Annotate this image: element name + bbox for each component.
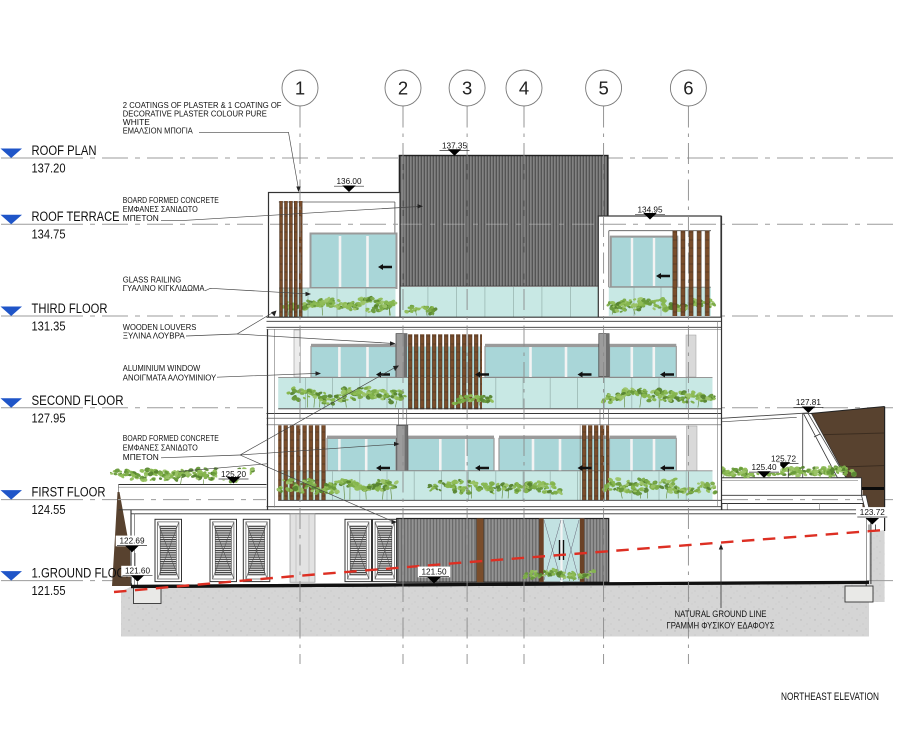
svg-text:121.55: 121.55 <box>32 583 66 598</box>
svg-text:SECOND FLOOR: SECOND FLOOR <box>32 393 124 408</box>
svg-text:ΕΜΦΑΝΕΣ ΣΑΝΙΔΩΤΟ: ΕΜΦΑΝΕΣ ΣΑΝΙΔΩΤΟ <box>123 444 198 453</box>
svg-text:131.35: 131.35 <box>32 319 66 334</box>
svg-text:BOARD FORMED CONCRETE: BOARD FORMED CONCRETE <box>123 434 219 443</box>
svg-text:1: 1 <box>295 78 305 99</box>
svg-text:1.GROUND FLOO.: 1.GROUND FLOO. <box>32 566 129 581</box>
svg-text:125.40: 125.40 <box>751 463 776 472</box>
svg-text:134.75: 134.75 <box>32 227 66 242</box>
svg-text:3: 3 <box>462 78 472 99</box>
svg-text:BOARD FORMED CONCRETE: BOARD FORMED CONCRETE <box>123 196 219 205</box>
svg-text:ΜΠΕΤΟΝ: ΜΠΕΤΟΝ <box>123 453 159 462</box>
svg-text:NATURAL GROUND LINE: NATURAL GROUND LINE <box>675 609 767 620</box>
svg-text:ALUMINIUM WINDOW: ALUMINIUM WINDOW <box>123 364 201 373</box>
svg-text:ΓΥΑΛΙΝΟ ΚΙΓΚΛΙΔΩΜΑ: ΓΥΑΛΙΝΟ ΚΙΓΚΛΙΔΩΜΑ <box>123 284 205 293</box>
svg-text:THIRD FLOOR: THIRD FLOOR <box>32 301 108 316</box>
svg-text:124.55: 124.55 <box>32 502 66 517</box>
svg-text:136.00: 136.00 <box>336 177 361 186</box>
svg-text:127.81: 127.81 <box>796 398 821 407</box>
svg-text:ΜΠΕΤΟΝ: ΜΠΕΤΟΝ <box>123 214 159 223</box>
svg-text:2: 2 <box>398 78 408 99</box>
svg-text:ΕΜΦΑΝΕΣ ΣΑΝΙΔΩΤΟ: ΕΜΦΑΝΕΣ ΣΑΝΙΔΩΤΟ <box>123 205 198 214</box>
svg-text:ΞΥΛΙΝΑ ΛΟΥΒΡΑ: ΞΥΛΙΝΑ ΛΟΥΒΡΑ <box>123 332 186 341</box>
svg-text:NORTHEAST ELEVATION: NORTHEAST ELEVATION <box>781 691 879 703</box>
svg-text:121.60: 121.60 <box>125 567 150 576</box>
svg-text:127.95: 127.95 <box>32 410 66 425</box>
svg-text:137.35: 137.35 <box>442 141 467 150</box>
svg-text:4: 4 <box>519 78 529 99</box>
svg-text:ROOF TERRACE: ROOF TERRACE <box>32 209 120 224</box>
svg-text:ΕΜΑΛΣΙΟΝ ΜΠΟΓΙΑ: ΕΜΑΛΣΙΟΝ ΜΠΟΓΙΑ <box>123 126 194 135</box>
svg-text:137.20: 137.20 <box>32 161 66 176</box>
svg-text:ΑΝΟΙΓΜΑΤΑ ΑΛΟΥΜΙΝΙΟΥ: ΑΝΟΙΓΜΑΤΑ ΑΛΟΥΜΙΝΙΟΥ <box>123 374 217 383</box>
svg-text:5: 5 <box>598 78 608 99</box>
svg-text:123.72: 123.72 <box>860 508 885 517</box>
svg-text:ΓΡΑΜΜΗ ΦΥΣΙΚΟΥ ΕΔΑΦΟΥΣ: ΓΡΑΜΜΗ ΦΥΣΙΚΟΥ ΕΔΑΦΟΥΣ <box>667 621 775 632</box>
svg-text:121.50: 121.50 <box>421 567 446 576</box>
svg-text:FIRST FLOOR: FIRST FLOOR <box>32 485 106 500</box>
svg-text:122.69: 122.69 <box>119 536 144 545</box>
svg-text:6: 6 <box>683 78 693 99</box>
svg-text:ROOF PLAN: ROOF PLAN <box>32 143 97 158</box>
